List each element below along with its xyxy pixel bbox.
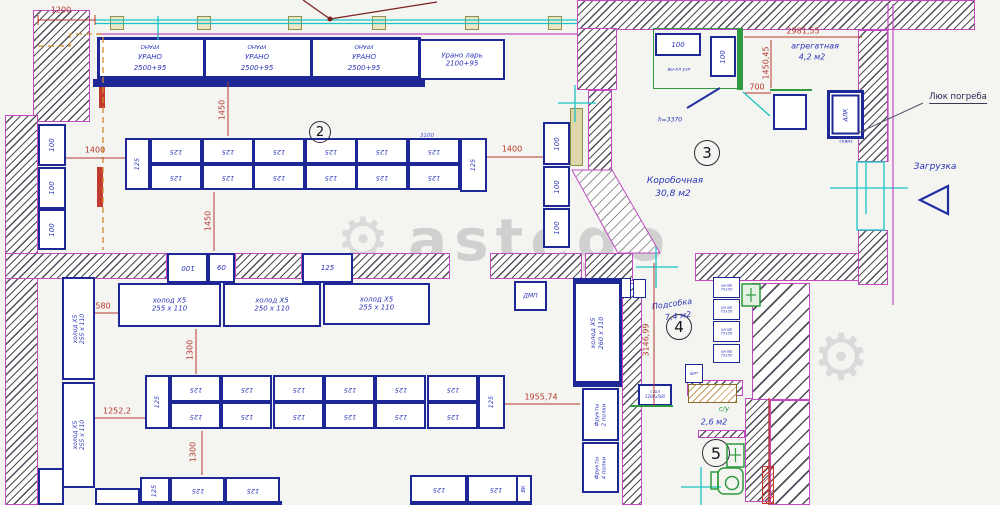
bin-100: 100	[38, 167, 66, 209]
label-group: 100	[552, 208, 560, 248]
room-number-3: 3	[694, 140, 720, 166]
label: холод Х5	[71, 277, 78, 380]
shelf-cell-125: 125	[305, 164, 357, 190]
label-group: 100	[552, 122, 560, 165]
shelf-cell-125: 125	[170, 402, 221, 429]
label: 75х50	[713, 310, 740, 315]
label-group: холод Х5255 x 110	[323, 296, 430, 313]
label: АЛК	[842, 90, 849, 139]
shelf-cell-125: 125	[356, 138, 408, 164]
wall-hatch	[770, 400, 810, 505]
shelf-cap-125: 125	[460, 138, 487, 192]
dimension-label: 1450	[218, 100, 227, 120]
dmp-box: ДМП	[514, 281, 547, 311]
shelf-cell-125: 125	[273, 402, 324, 429]
label-group: 125	[202, 147, 254, 155]
rack-brand-label: УРАНО	[245, 53, 269, 61]
label: 255 х 110	[79, 382, 86, 488]
label: 100	[552, 208, 560, 248]
freezer-chest-urano: Урано ларь2100+95	[419, 39, 505, 80]
label: 125	[427, 385, 478, 393]
small-cabinet: шкаф75х50	[713, 344, 740, 363]
label: 100	[48, 209, 56, 250]
label: 125	[356, 173, 408, 181]
wall-hatch	[235, 253, 302, 279]
wall-hatch	[752, 283, 810, 400]
label-group: 125	[253, 147, 305, 155]
label-group: холод Х5255 х 110	[71, 277, 85, 380]
shelf-cell-125: 125	[408, 164, 460, 190]
rack-label-flipped: УРАНО	[141, 43, 160, 49]
label: Фрукты	[594, 388, 601, 441]
label-group: 125	[375, 412, 426, 420]
label-group: 100	[719, 36, 727, 77]
label-group: ДМП	[514, 292, 547, 299]
label: 100	[655, 40, 701, 48]
shelf-cell-125: 125	[253, 138, 305, 164]
label: ВК	[521, 475, 527, 503]
label: 60	[208, 264, 235, 272]
red-wall-strip	[97, 167, 103, 207]
corner-box	[38, 468, 64, 505]
leader-dot	[328, 17, 333, 22]
label: 100	[48, 167, 56, 209]
label: Фрукты	[594, 442, 601, 493]
shelf-cell-125: 125	[253, 164, 305, 190]
label-group: 125	[225, 486, 280, 494]
shelf-cell-125: 125	[427, 375, 478, 402]
wall-hatch	[588, 90, 612, 172]
rack-divider	[310, 37, 313, 79]
floor-plan-canvas: astego⚙⚙УРАНОУРАНО2500+95УРАНОУРАНО2500+…	[0, 0, 1000, 505]
label: 100	[167, 264, 208, 272]
label-group: 125	[221, 385, 272, 393]
label-group: 125	[170, 486, 225, 494]
label-group: 125	[356, 147, 408, 155]
counter-box-100: 100	[710, 36, 736, 77]
bin-100: 100	[543, 208, 570, 248]
shelf-cell-125: 125	[305, 138, 357, 164]
label: 125	[134, 138, 142, 190]
label: 260 х 110	[598, 278, 606, 387]
shelf-cell-125: 125	[221, 402, 272, 429]
alk-subnote: сквиз	[839, 140, 852, 145]
room3-name: Коробочная	[647, 176, 703, 186]
label-group: Урано ларь2100+95	[419, 51, 505, 68]
bin-100: 100	[38, 209, 66, 250]
door-leaf-box	[773, 94, 807, 130]
rack-label-flipped: УРАНО	[355, 43, 374, 49]
alk-cabinet: АЛК	[827, 90, 864, 139]
wall-hatch	[698, 430, 745, 438]
dimension-label: 1955,74	[524, 393, 557, 402]
label: 125	[305, 173, 357, 181]
shelf-cell-125: 125	[202, 138, 254, 164]
shelf-cell-125: 125	[427, 402, 478, 429]
window-mullion	[548, 16, 562, 30]
edge-box	[95, 488, 140, 505]
dimension-label: 1200	[51, 6, 71, 15]
label-group: холод Х5255 х 110	[71, 382, 85, 488]
shelf-cell-125: 125	[221, 375, 272, 402]
fridge-unit-260: холод Х5260 х 110	[573, 278, 622, 387]
fridge-unit-vertical: холод Х5255 х 110	[62, 382, 95, 488]
label-group: 100	[655, 40, 701, 48]
rack-bottom-strip	[140, 501, 282, 505]
label: 125	[375, 385, 426, 393]
label: щит	[685, 371, 703, 376]
label: 125	[221, 412, 272, 420]
shelf-cell-125: 125	[410, 475, 467, 503]
label-group: ВК	[521, 475, 527, 503]
label-group: 125	[221, 412, 272, 420]
wall-hatch	[5, 253, 167, 279]
wall-box-125: 125	[302, 253, 353, 283]
wall-hatch	[577, 28, 617, 90]
window-mullion	[197, 16, 211, 30]
label-group: 125	[488, 375, 496, 429]
label-group: 125	[408, 147, 460, 155]
window-mullion	[288, 16, 302, 30]
rack-size-label: 2500+95	[241, 64, 274, 72]
label-group: 125	[427, 412, 478, 420]
window-mullion	[372, 16, 386, 30]
label-group: 125	[324, 412, 375, 420]
label-group: 125	[305, 147, 357, 155]
label-group: 125	[273, 385, 324, 393]
small-cabinet: шкаф75х50	[713, 277, 740, 298]
room4-name: Подсобка	[651, 297, 692, 312]
dimension-label: 1300	[189, 442, 198, 462]
wall-hatch	[5, 115, 38, 505]
fridge-unit-vertical: холод Х5255 х 110	[62, 277, 95, 380]
window-mullion	[465, 16, 479, 30]
label: ДМП	[514, 292, 547, 299]
label: 100	[48, 124, 56, 166]
label: 125	[253, 173, 305, 181]
dimension-label: 1300	[186, 340, 195, 360]
dimension-label: 1400	[502, 145, 522, 154]
label: 125	[375, 412, 426, 420]
wall-box-100: 100	[167, 253, 208, 283]
bin-100: 100	[543, 166, 570, 207]
label-group: 125	[356, 173, 408, 181]
label-group: 125	[150, 147, 202, 155]
wall-hatch	[585, 253, 633, 281]
cellar-hatch-callout: Люк погреба	[929, 92, 987, 104]
bin-100: 100	[543, 122, 570, 165]
label: холод Х5	[323, 296, 430, 304]
wall-hatch	[858, 230, 888, 285]
label: 125	[408, 173, 460, 181]
label: 125	[470, 138, 478, 192]
label: 125	[170, 385, 221, 393]
label: 2 полки	[601, 388, 608, 441]
door-box	[633, 279, 646, 298]
label: 250 x 110	[223, 305, 321, 313]
table-green-edge	[630, 405, 673, 407]
label: 75х50	[713, 288, 740, 293]
label: 100	[552, 122, 560, 165]
room-number-2: 2	[309, 121, 331, 143]
fridge-unit: холод Х5250 x 110	[223, 283, 321, 327]
label-group: стол1200х500	[638, 390, 672, 400]
label-group: 125	[302, 264, 353, 272]
label-group: 125	[324, 385, 375, 393]
shelf-cell-125: 125	[150, 164, 202, 190]
label: 2100+95	[419, 60, 505, 68]
fridge-unit: холод Х5255 x 110	[323, 283, 430, 325]
label-group: 125	[408, 173, 460, 181]
room5-name: с/у	[719, 405, 729, 413]
label-group: 100	[48, 124, 56, 166]
label: 125	[302, 264, 353, 272]
label: 125	[427, 412, 478, 420]
label: 125	[410, 485, 467, 493]
room3-area: 30,8 м2	[655, 189, 690, 199]
table-box: стол1200х500	[638, 384, 672, 406]
label: 255 х 110	[79, 277, 86, 380]
shelf-cell-125: 125	[150, 138, 202, 164]
label: 4 полки	[601, 442, 608, 493]
dimension-label: 580	[95, 302, 110, 311]
rack-brand-label: УРАНО	[352, 53, 376, 61]
label-group: 60	[208, 264, 235, 272]
label: 125	[170, 486, 225, 494]
label-group: холод Х5250 x 110	[223, 297, 321, 314]
label: 125	[273, 385, 324, 393]
dimension-label: 700	[749, 83, 764, 92]
dimension-label: 1450	[204, 211, 213, 231]
label: 125	[324, 412, 375, 420]
label: Урано ларь	[419, 51, 505, 59]
label-group: 125	[170, 412, 221, 420]
counter-note: вы-кл узл	[668, 68, 691, 73]
label-group: 125	[427, 385, 478, 393]
dimension-label: 2981,55	[786, 27, 819, 36]
label: 125	[150, 173, 202, 181]
label: 75х50	[713, 332, 740, 337]
small-cabinet: шкаф75х50	[713, 321, 740, 342]
fruit-cabinet: Фрукты2 полки	[582, 388, 619, 441]
fridge-unit: холод Х5255 x 110	[118, 283, 221, 327]
label-group: шкаф75х50	[713, 283, 740, 292]
shelf-cell-125: 125	[225, 477, 280, 503]
service-table	[688, 384, 737, 403]
label: 125	[305, 147, 357, 155]
label-group: щит	[685, 371, 703, 376]
rack-brand-label: УРАНО	[138, 53, 162, 61]
shelf-cap-125: 125	[478, 375, 505, 429]
label-group: 125	[134, 138, 142, 190]
rack-label-flipped: УРАНО	[248, 43, 267, 49]
label: 125	[253, 147, 305, 155]
label-group: 100	[48, 209, 56, 250]
bin-100: 100	[38, 124, 66, 166]
label: 1200х500	[638, 395, 672, 400]
label: 125	[324, 385, 375, 393]
label: 75х50	[713, 354, 740, 359]
shelf-cell-125: 125	[375, 375, 426, 402]
label-group: шкаф75х50	[713, 305, 740, 314]
label-group: шкаф75х50	[713, 327, 740, 336]
label-group: 125	[273, 412, 324, 420]
shelf-cell-125: 125	[375, 402, 426, 429]
label-group: холод Х5255 x 110	[118, 297, 221, 314]
dimension-label: 1252,2	[103, 407, 131, 416]
label: 255 x 110	[323, 304, 430, 312]
ceiling-height-note: h=3370	[658, 117, 682, 124]
rack-size-label: 2500+95	[134, 64, 167, 72]
label: 125	[221, 385, 272, 393]
loading-arrow-icon	[920, 186, 948, 214]
label-group: 125	[170, 385, 221, 393]
shelf-cell-125: 125	[324, 402, 375, 429]
label: 125	[170, 412, 221, 420]
label-group: 100	[552, 166, 560, 207]
shelf-cell-125: 125	[202, 164, 254, 190]
label-group: 125	[410, 485, 467, 493]
label: холод Х5	[223, 297, 321, 305]
label-group: 100	[167, 264, 208, 272]
label-group: Фрукты4 полки	[594, 442, 607, 493]
counter-end-bar	[737, 28, 743, 90]
label: 125	[154, 375, 162, 429]
fruit-cabinet: Фрукты4 полки	[582, 442, 619, 493]
wall-hatch	[33, 10, 90, 122]
shelf-cell-125: 125	[408, 138, 460, 164]
shelf-cell-125: 125	[170, 375, 221, 402]
shelf-cell-125: 125	[170, 477, 225, 503]
shelf-cell-125: 125	[324, 375, 375, 402]
label-group: 125	[305, 173, 357, 181]
loading-callout: Загрузка	[914, 162, 957, 172]
wall-hatch	[352, 253, 450, 279]
dimension-label: 3146,99	[642, 323, 651, 356]
label-group: холод Х5260 х 110	[590, 278, 606, 387]
dimension-label: 1450,45	[762, 46, 771, 79]
label: 125	[273, 412, 324, 420]
aggregate-room-area: 4,2 м2	[799, 53, 825, 62]
label: 100	[552, 166, 560, 207]
leader-lines	[303, 0, 437, 19]
pier-strip	[570, 108, 583, 166]
rack-size-label: 2500+95	[348, 64, 381, 72]
label-group: 125	[154, 375, 162, 429]
door-and-arrow	[687, 88, 948, 214]
label: 125	[408, 147, 460, 155]
wall-hatch	[490, 253, 582, 279]
label-group: 125	[202, 173, 254, 181]
label-group: 100	[48, 167, 56, 209]
small-cabinet: шкаф75х50	[713, 299, 740, 320]
label: 125	[202, 173, 254, 181]
label: 125	[225, 486, 280, 494]
label-group: Фрукты2 полки	[594, 388, 607, 441]
label: 125	[488, 375, 496, 429]
label-group: 125	[375, 385, 426, 393]
shelf-cap-125: 125	[145, 375, 170, 429]
approx-width-note: 3100	[420, 133, 434, 139]
label-group: 125	[150, 173, 202, 181]
aggregate-room-name: агрегатная	[791, 42, 839, 51]
label: 125	[150, 147, 202, 155]
counter-box-100: 100	[655, 33, 701, 56]
electric-shield-box: щит	[685, 364, 703, 383]
room-number-5: 5	[702, 439, 730, 467]
label: холод Х5	[71, 382, 78, 488]
rack-divider	[203, 37, 206, 79]
wall-hatch	[577, 0, 975, 30]
label: 125	[202, 147, 254, 155]
label-group: 125	[253, 173, 305, 181]
room5-area: 2,6 м2	[701, 418, 727, 427]
green-edge	[770, 89, 812, 91]
label-group: 125	[470, 138, 478, 192]
rack-bottom-strip	[410, 501, 532, 505]
shelf-cap-vk: ВК	[516, 475, 532, 503]
label: 100	[719, 36, 727, 77]
gear-icon: ⚙	[812, 321, 869, 395]
riser-shaft	[762, 466, 774, 504]
shelf-cap-125: 125	[125, 138, 150, 190]
label-group: шкаф75х50	[713, 349, 740, 358]
label: 255 x 110	[118, 305, 221, 313]
window-mullion	[110, 16, 124, 30]
label-group: АЛК	[842, 90, 849, 139]
label: холод Х5	[118, 297, 221, 305]
dimension-label: 1400	[85, 146, 105, 155]
shelf-cell-125: 125	[356, 164, 408, 190]
wall-box-60: 60	[208, 253, 235, 283]
shelf-cell-125: 125	[273, 375, 324, 402]
rack-base-bar	[93, 79, 425, 87]
label: 125	[356, 147, 408, 155]
